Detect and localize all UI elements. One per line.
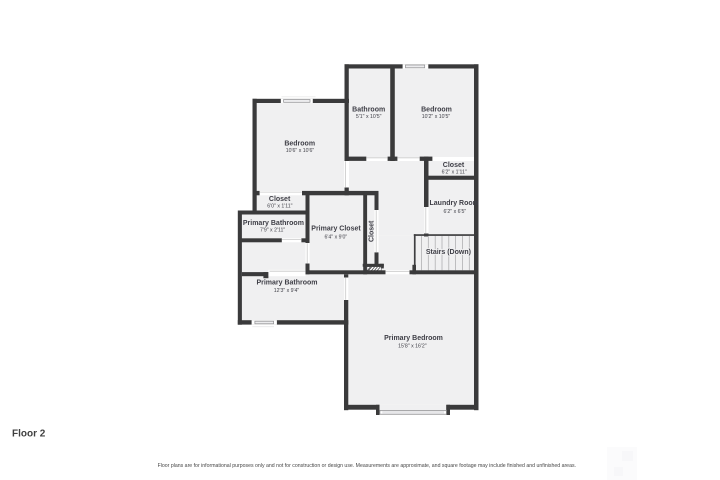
- svg-text:6'2" x 1'11": 6'2" x 1'11": [442, 169, 467, 175]
- svg-text:10'2" x 10'5": 10'2" x 10'5": [422, 114, 451, 120]
- svg-text:10'6" x 10'6": 10'6" x 10'6": [286, 148, 315, 154]
- svg-text:Laundry Room: Laundry Room: [430, 200, 479, 207]
- svg-text:15'8" x 16'2": 15'8" x 16'2": [398, 344, 427, 350]
- svg-text:Primary Bedroom: Primary Bedroom: [384, 335, 443, 342]
- svg-text:Floor 2: Floor 2: [12, 429, 46, 440]
- svg-text:Closet: Closet: [369, 220, 376, 242]
- svg-text:Floor plans are for informatio: Floor plans are for informational purpos…: [158, 463, 576, 469]
- svg-text:Closet: Closet: [443, 162, 465, 169]
- svg-text:Bedroom: Bedroom: [421, 106, 452, 113]
- svg-text:Bathroom: Bathroom: [352, 106, 385, 113]
- svg-text:Primary Bathroom: Primary Bathroom: [256, 279, 317, 286]
- svg-text:Closet: Closet: [269, 196, 291, 203]
- svg-text:12'3" x 9'4": 12'3" x 9'4": [274, 288, 300, 294]
- svg-text:7'9" x 2'11": 7'9" x 2'11": [260, 228, 285, 234]
- svg-text:Bedroom: Bedroom: [284, 141, 315, 148]
- svg-text:5'1" x 10'5": 5'1" x 10'5": [356, 114, 382, 120]
- svg-text:Stairs (Down): Stairs (Down): [426, 249, 471, 256]
- svg-text:Primary Closet: Primary Closet: [311, 226, 361, 233]
- svg-text:Primary Bathroom: Primary Bathroom: [243, 220, 304, 227]
- svg-text:6'0" x 1'11": 6'0" x 1'11": [267, 203, 292, 209]
- svg-text:6'2" x 6'5": 6'2" x 6'5": [444, 209, 467, 215]
- svg-text:6'4" x 9'0": 6'4" x 9'0": [325, 234, 348, 240]
